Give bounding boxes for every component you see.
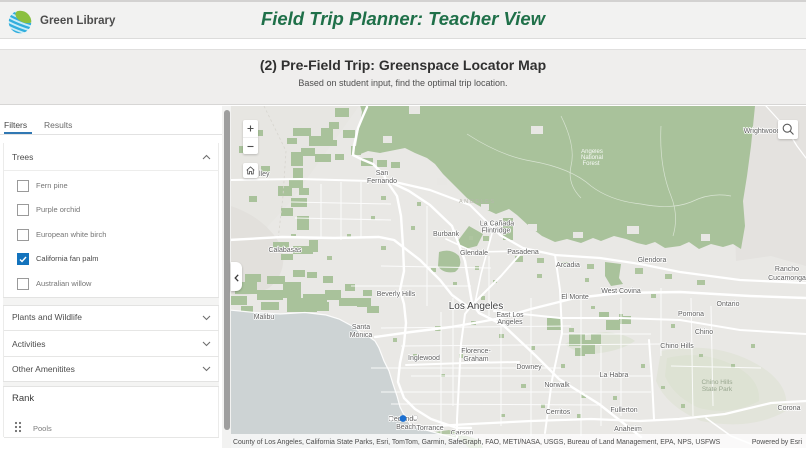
svg-text:Glendora: Glendora [638,257,667,264]
svg-text:Fernando: Fernando [367,178,397,185]
svg-text:La Habra: La Habra [600,372,629,379]
svg-text:Fullerton: Fullerton [610,407,637,414]
svg-text:Cucamonga: Cucamonga [768,275,806,282]
svg-text:County of Los Angeles, Califor: County of Los Angeles, California State … [233,439,721,446]
svg-text:Chino Hills: Chino Hills [701,379,733,386]
svg-text:Chino: Chino [695,329,713,336]
svg-text:Burbank: Burbank [433,231,460,238]
svg-text:Flintridge: Flintridge [482,228,511,235]
svg-text:Wrightwood: Wrightwood [744,128,781,135]
svg-text:Pasadena: Pasadena [507,249,539,256]
svg-text:Ontario: Ontario [717,301,740,308]
svg-text:West Covina: West Covina [601,288,641,295]
svg-text:Arcadia: Arcadia [556,262,580,269]
svg-text:lley: lley [259,171,270,178]
svg-text:Forest: Forest [582,161,599,167]
svg-text:Pomona: Pomona [678,311,704,318]
svg-text:Beverly Hills: Beverly Hills [377,291,416,298]
svg-text:Beach: Beach [396,424,416,431]
svg-text:Santa: Santa [352,324,370,331]
svg-text:Graham: Graham [463,356,488,363]
svg-text:Anaheim: Anaheim [614,426,642,433]
svg-text:Powered by Esri: Powered by Esri [752,439,803,446]
svg-text:Downey: Downey [516,364,542,371]
svg-text:ANGELES: ANGELES [459,199,495,205]
svg-text:East Los: East Los [496,312,524,319]
svg-text:La Cañada: La Cañada [480,221,514,228]
svg-text:Cerritos: Cerritos [546,409,571,416]
svg-text:Los Angeles: Los Angeles [449,301,504,312]
svg-text:Torrance: Torrance [416,425,443,432]
svg-text:Malibu: Malibu [254,314,275,321]
svg-text:Corona: Corona [778,405,801,412]
svg-text:Rancho: Rancho [775,266,799,273]
svg-text:Angeles: Angeles [497,319,523,326]
svg-text:Inglewood: Inglewood [408,355,440,362]
svg-text:Glendale: Glendale [460,250,488,257]
svg-text:Mónica: Mónica [350,332,373,339]
svg-text:Chino Hills: Chino Hills [660,343,694,350]
svg-text:Florence-: Florence- [461,348,491,355]
svg-text:Norwalk: Norwalk [544,382,570,389]
svg-text:State Park: State Park [702,386,733,393]
svg-text:San: San [376,170,389,177]
svg-text:El Monte: El Monte [561,294,589,301]
svg-text:Calabasas: Calabasas [268,247,302,254]
